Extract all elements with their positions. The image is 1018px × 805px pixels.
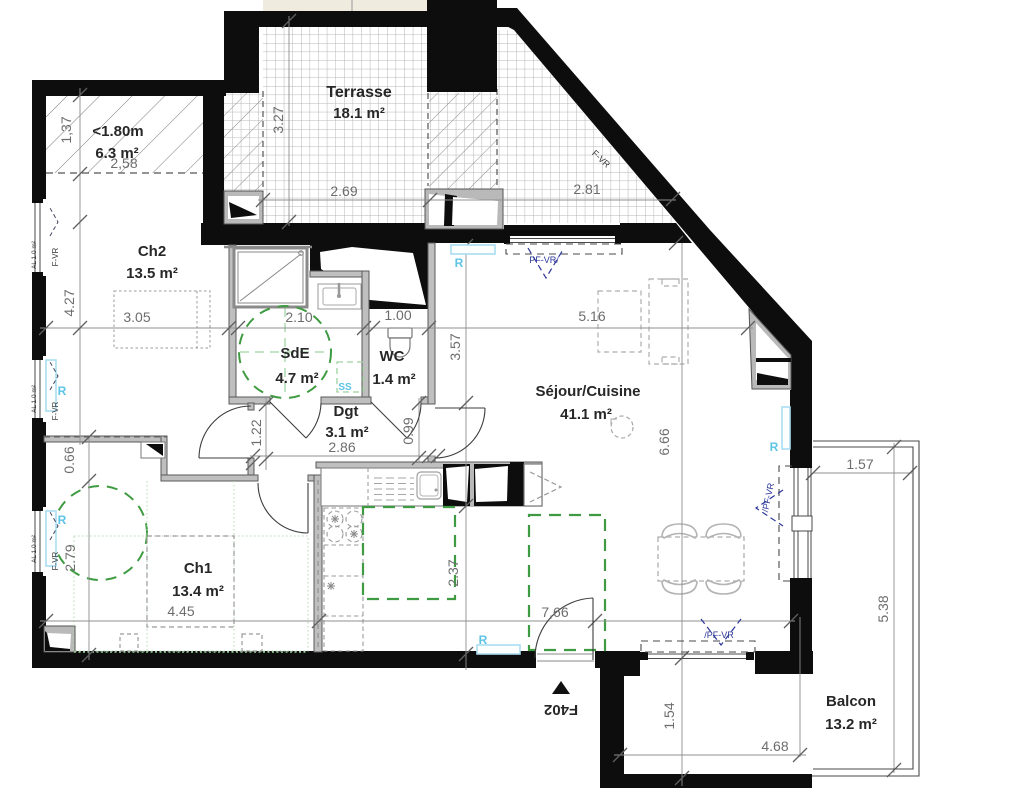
svg-text:Balcon: Balcon xyxy=(826,693,876,710)
svg-text:F-VR: F-VR xyxy=(51,401,60,420)
svg-text:2.69: 2.69 xyxy=(330,183,357,199)
svg-text:F-VR: F-VR xyxy=(51,247,60,266)
svg-text:3.57: 3.57 xyxy=(447,333,463,360)
svg-text:Ch1: Ch1 xyxy=(184,560,212,577)
svg-text:R: R xyxy=(770,440,779,454)
svg-text:2.37: 2.37 xyxy=(445,559,461,586)
svg-text:AL 1.0 m²: AL 1.0 m² xyxy=(31,384,38,413)
svg-text:AL 1.0 m²: AL 1.0 m² xyxy=(31,534,38,563)
svg-text:13.2 m²: 13.2 m² xyxy=(825,716,877,733)
svg-text:2,58: 2,58 xyxy=(110,155,137,171)
svg-text:4.7 m²: 4.7 m² xyxy=(275,370,318,387)
svg-text:5.38: 5.38 xyxy=(875,595,891,622)
svg-text:R: R xyxy=(455,256,464,270)
svg-text:WC: WC xyxy=(380,348,405,365)
svg-text:5.16: 5.16 xyxy=(578,308,605,324)
svg-text:1.57: 1.57 xyxy=(846,456,873,472)
svg-text:F402: F402 xyxy=(544,701,578,718)
svg-text:SdE: SdE xyxy=(280,345,309,362)
svg-text:13.5 m²: 13.5 m² xyxy=(126,265,178,282)
svg-text:0.99: 0.99 xyxy=(400,417,416,444)
svg-text:PF-VR/: PF-VR/ xyxy=(529,255,559,265)
svg-text:Séjour/Cuisine: Séjour/Cuisine xyxy=(535,383,640,400)
svg-text:<1.80m: <1.80m xyxy=(92,123,143,140)
svg-text:7,66: 7,66 xyxy=(541,604,568,620)
svg-text:13.4 m²: 13.4 m² xyxy=(172,583,224,600)
svg-text:1,37: 1,37 xyxy=(58,116,74,143)
svg-text:AL 1.0 m²: AL 1.0 m² xyxy=(31,240,38,269)
svg-text:1.54: 1.54 xyxy=(661,702,677,729)
svg-text:41.1 m²: 41.1 m² xyxy=(560,406,612,423)
svg-text:Dgt: Dgt xyxy=(334,403,359,420)
svg-text:18.1 m²: 18.1 m² xyxy=(333,105,385,122)
svg-text:F-VR: F-VR xyxy=(51,551,60,570)
svg-text:1.22: 1.22 xyxy=(248,419,264,446)
svg-text:/PF-VR: /PF-VR xyxy=(704,630,734,640)
svg-text:3.05: 3.05 xyxy=(123,309,150,325)
svg-text:1.4 m²: 1.4 m² xyxy=(372,371,415,388)
svg-text:Terrasse: Terrasse xyxy=(326,84,392,101)
svg-text:Ch2: Ch2 xyxy=(138,243,166,260)
svg-text:2.81: 2.81 xyxy=(573,181,600,197)
svg-text:0.66: 0.66 xyxy=(61,446,77,473)
svg-text:R: R xyxy=(58,513,67,527)
svg-text:6.66: 6.66 xyxy=(656,428,672,455)
svg-text:R: R xyxy=(479,633,488,647)
svg-text:4.45: 4.45 xyxy=(167,603,194,619)
svg-text:SS: SS xyxy=(338,382,352,393)
svg-text:1.00: 1.00 xyxy=(384,307,411,323)
svg-text:R: R xyxy=(58,384,67,398)
svg-text:3.27: 3.27 xyxy=(270,106,286,133)
svg-text:4.68: 4.68 xyxy=(761,738,788,754)
svg-text:2.10: 2.10 xyxy=(285,309,312,325)
svg-text:2.86: 2.86 xyxy=(328,439,355,455)
svg-text:4.27: 4.27 xyxy=(61,289,77,316)
svg-text:2.79: 2.79 xyxy=(62,544,78,571)
